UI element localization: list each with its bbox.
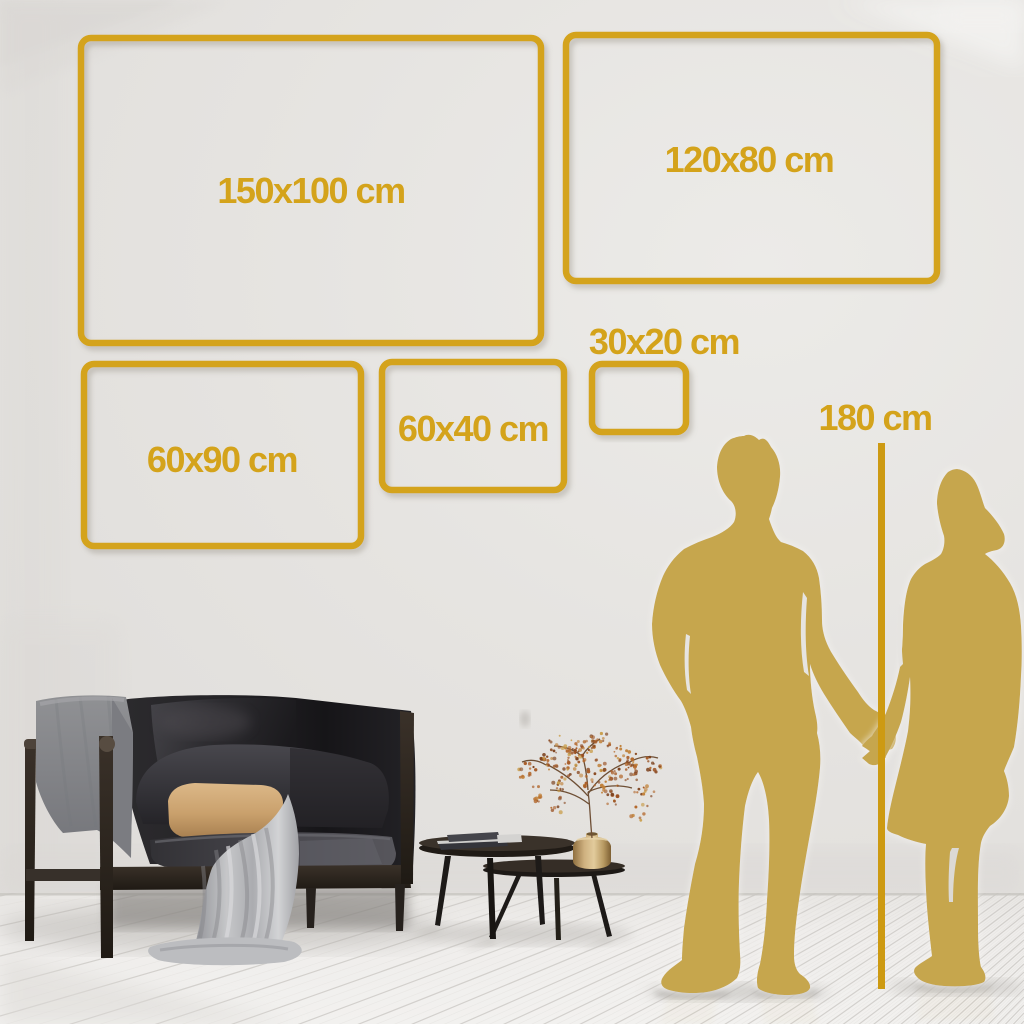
svg-text:150x100 cm: 150x100 cm: [217, 170, 404, 211]
svg-text:180 cm: 180 cm: [818, 397, 931, 438]
svg-text:120x80 cm: 120x80 cm: [665, 139, 834, 180]
svg-text:60x90 cm: 60x90 cm: [147, 439, 297, 480]
svg-text:30x20 cm: 30x20 cm: [589, 321, 739, 362]
svg-text:60x40 cm: 60x40 cm: [398, 408, 548, 449]
